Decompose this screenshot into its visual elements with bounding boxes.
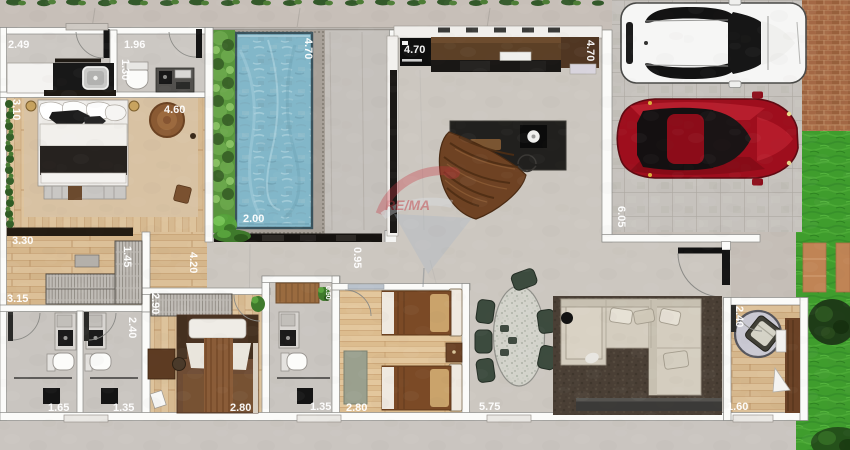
svg-text:1.60: 1.60 xyxy=(727,401,748,413)
svg-text:3.30: 3.30 xyxy=(12,235,33,247)
svg-text:2.90: 2.90 xyxy=(149,293,161,314)
svg-text:3.15: 3.15 xyxy=(7,293,28,305)
svg-text:2.40: 2.40 xyxy=(733,306,745,327)
svg-text:6.05: 6.05 xyxy=(615,206,627,227)
svg-text:3.10: 3.10 xyxy=(10,99,22,120)
svg-text:1.96: 1.96 xyxy=(124,39,145,51)
svg-text:4.70: 4.70 xyxy=(302,38,314,59)
svg-text:0.95: 0.95 xyxy=(351,247,363,268)
svg-text:2.49: 2.49 xyxy=(8,39,29,51)
svg-text:1.65: 1.65 xyxy=(48,402,69,414)
svg-text:2.80: 2.80 xyxy=(230,402,251,414)
svg-text:4.70: 4.70 xyxy=(404,44,425,56)
svg-text:2.40: 2.40 xyxy=(126,317,138,338)
svg-text:1.30: 1.30 xyxy=(119,59,131,80)
svg-text:4.70: 4.70 xyxy=(584,40,596,61)
svg-text:5.75: 5.75 xyxy=(479,401,500,413)
svg-text:1.45: 1.45 xyxy=(121,246,133,267)
svg-text:1.35: 1.35 xyxy=(113,402,134,414)
svg-text:0.50: 0.50 xyxy=(324,286,331,300)
svg-text:2.00: 2.00 xyxy=(243,213,264,225)
svg-text:1.35: 1.35 xyxy=(310,401,331,413)
svg-text:4.20: 4.20 xyxy=(187,252,199,273)
svg-text:4.60: 4.60 xyxy=(164,104,185,116)
svg-text:2.80: 2.80 xyxy=(346,402,367,414)
